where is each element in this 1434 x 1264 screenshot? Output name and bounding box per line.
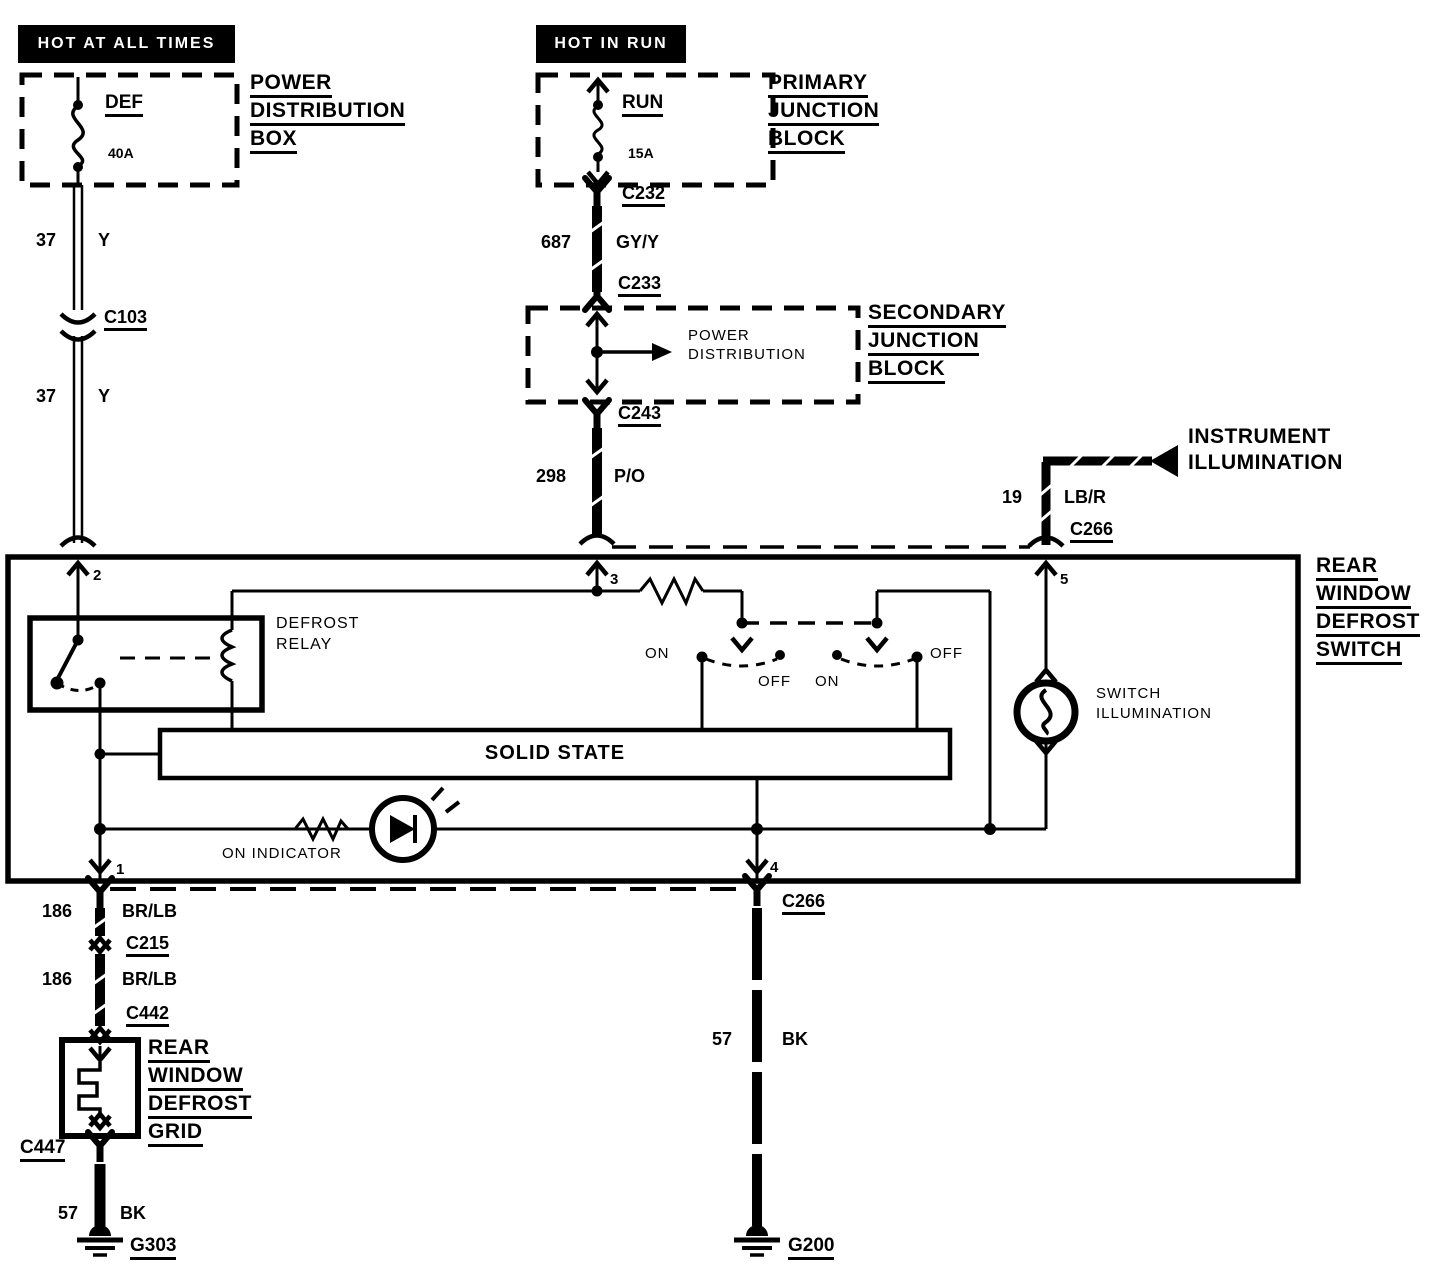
defrost-relay-label-2: RELAY (276, 637, 332, 654)
switch-right-on-label: ON (815, 674, 840, 690)
rear-window-defrost-switch-label-3: DEFROST (1316, 611, 1420, 637)
connector-c442-label: C442 (126, 1004, 169, 1027)
connector-c447-label: C447 (20, 1138, 65, 1162)
wiring-diagram-page: HOT AT ALL TIMES HOT IN RUN DEF 40A POWE… (0, 0, 1434, 1264)
wire-687-color: GY/Y (616, 233, 659, 252)
wire-186b-color: BR/LB (122, 970, 177, 989)
wire-186a-color: BR/LB (122, 902, 177, 921)
secondary-junction-block-label-2: JUNCTION (868, 330, 979, 356)
wire-19-id: 19 (1002, 488, 1022, 507)
pin-5-label: 5 (1060, 572, 1068, 588)
wire-57b-color: BK (782, 1030, 808, 1049)
hot-at-all-times-header: HOT AT ALL TIMES (18, 25, 235, 63)
switch-illumination-label-1: SWITCH (1096, 686, 1161, 702)
primary-junction-block-label-1: PRIMARY (768, 72, 868, 98)
pin-4-label: 4 (770, 860, 778, 876)
wire-687-id: 687 (541, 233, 571, 252)
fuse-run-label: RUN (622, 93, 663, 117)
connector-c266-bottom-label: C266 (782, 892, 825, 915)
connector-c243-label: C243 (618, 404, 661, 427)
power-distribution-box-label-3: BOX (250, 128, 297, 154)
wire-186a-id: 186 (42, 902, 72, 921)
wire-57a-color: BK (120, 1204, 146, 1223)
wire-57-bk-left-graphic (77, 1132, 123, 1255)
switch-right-off-label: OFF (930, 646, 963, 662)
connector-c215-label: C215 (126, 934, 169, 957)
wire-37b-id: 37 (36, 387, 56, 406)
connector-c103-label: C103 (104, 308, 147, 331)
wire-57a-id: 57 (58, 1204, 78, 1223)
rear-window-defrost-switch-label-4: SWITCH (1316, 639, 1402, 665)
ground-g200-label: G200 (788, 1236, 834, 1260)
secondary-junction-block-label-1: SECONDARY (868, 302, 1006, 328)
connector-c266-top-label: C266 (1070, 520, 1113, 543)
fuse-def-label: DEF (105, 93, 143, 117)
primary-junction-block-label-2: JUNCTION (768, 100, 879, 126)
wire-186b-id: 186 (42, 970, 72, 989)
wire-37a-color: Y (98, 231, 110, 250)
wire-298-po-graphic (580, 400, 614, 544)
rear-window-defrost-grid-label-1: REAR (148, 1037, 210, 1063)
rear-window-defrost-grid-label-3: DEFROST (148, 1093, 252, 1119)
sjb-inner-label-1: POWER (688, 328, 750, 344)
switch-left-on-label: ON (645, 646, 670, 662)
wire-298-id: 298 (536, 467, 566, 486)
rear-window-defrost-grid-label-4: GRID (148, 1121, 203, 1147)
fuse-def-rating: 40A (108, 146, 134, 161)
pin-1-label: 1 (116, 862, 124, 878)
wire-57-bk-right-graphic (734, 876, 780, 1255)
rear-window-defrost-grid-graphic (62, 1040, 138, 1136)
primary-junction-block-label-3: BLOCK (768, 128, 845, 154)
rear-window-defrost-grid-label-2: WINDOW (148, 1065, 243, 1091)
wire-57b-id: 57 (712, 1030, 732, 1049)
power-distribution-box-label-2: DISTRIBUTION (250, 100, 405, 126)
wire-186-brlb-graphic (88, 878, 112, 1042)
rear-window-defrost-switch-label-2: WINDOW (1316, 583, 1411, 609)
pin-2-label: 2 (93, 568, 101, 584)
defrost-relay-label-1: DEFROST (276, 616, 359, 633)
wire-37a-id: 37 (36, 231, 56, 250)
wire-37-y-graphic (61, 185, 95, 546)
wire-687-gyy-graphic (585, 178, 609, 310)
sjb-inner-label-2: DISTRIBUTION (688, 347, 806, 363)
wire-19-color: LB/R (1064, 488, 1106, 507)
secondary-junction-block-label-3: BLOCK (868, 358, 945, 384)
switch-left-off-label: OFF (758, 674, 791, 690)
power-distribution-box-label-1: POWER (250, 72, 332, 98)
instrument-illumination-label-1: INSTRUMENT (1188, 426, 1331, 448)
connector-c233-label: C233 (618, 274, 661, 297)
connector-c232-label: C232 (622, 184, 665, 207)
pin-3-label: 3 (610, 572, 618, 588)
instrument-illumination-label-2: ILLUMINATION (1188, 452, 1343, 474)
fuse-run-rating: 15A (628, 146, 654, 161)
rear-window-defrost-switch-label-1: REAR (1316, 555, 1378, 581)
on-indicator-label: ON INDICATOR (222, 846, 342, 862)
switch-illumination-label-2: ILLUMINATION (1096, 706, 1212, 722)
hot-in-run-header: HOT IN RUN (536, 25, 686, 63)
wire-298-color: P/O (614, 467, 645, 486)
solid-state-label: SOLID STATE (160, 742, 950, 765)
ground-g303-label: G303 (130, 1236, 176, 1260)
wire-37b-color: Y (98, 387, 110, 406)
